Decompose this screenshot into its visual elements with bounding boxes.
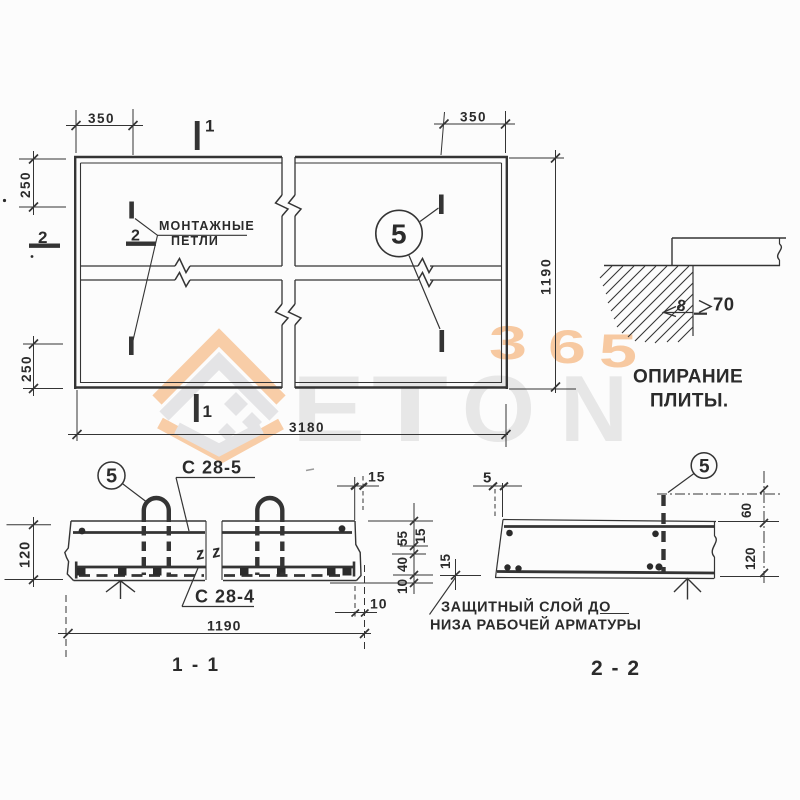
svg-text:40: 40 [395,557,410,572]
svg-text:250: 250 [18,171,33,198]
svg-text:z: z [209,541,223,562]
svg-text:350: 350 [88,111,115,126]
svg-text:60: 60 [739,503,754,518]
svg-text:3180: 3180 [289,420,325,435]
svg-text:15: 15 [413,528,428,544]
svg-text:250: 250 [19,355,34,382]
svg-text:10: 10 [395,579,410,594]
svg-text:ПЕТЛИ: ПЕТЛИ [171,234,219,248]
svg-text:1 - 1: 1 - 1 [172,655,220,676]
svg-text:С 28-4: С 28-4 [195,587,255,607]
svg-text:1190: 1190 [538,257,554,295]
svg-text:70: 70 [713,294,735,315]
svg-text:5: 5 [391,219,407,250]
svg-text:1190: 1190 [207,618,241,634]
svg-text:МОНТАЖНЫЕ: МОНТАЖНЫЕ [159,219,255,233]
svg-text:ПЛИТЫ.: ПЛИТЫ. [650,391,729,412]
svg-text:15: 15 [438,553,453,569]
svg-text:z: z [193,543,207,564]
svg-text:55: 55 [395,530,410,546]
svg-text:1: 1 [203,402,212,421]
svg-text:ОПИРАНИЕ: ОПИРАНИЕ [633,367,743,388]
svg-text:НИЗА РАБОЧЕЙ АРМАТУРЫ: НИЗА РАБОЧЕЙ АРМАТУРЫ [430,616,641,634]
svg-text:350: 350 [460,110,487,125]
svg-text:120: 120 [18,541,34,568]
svg-text:5: 5 [483,470,491,487]
svg-text:С 28-5: С 28-5 [182,458,242,478]
svg-text:2 - 2: 2 - 2 [591,657,641,680]
svg-text:15: 15 [368,469,386,485]
svg-text:5: 5 [699,457,710,478]
svg-text:1: 1 [205,117,214,136]
svg-text:10: 10 [370,596,388,612]
svg-text:120: 120 [743,547,758,570]
svg-text:ЗАЩИТНЫЙ СЛОЙ ДО: ЗАЩИТНЫЙ СЛОЙ ДО [441,598,611,616]
svg-text:5: 5 [106,466,117,488]
